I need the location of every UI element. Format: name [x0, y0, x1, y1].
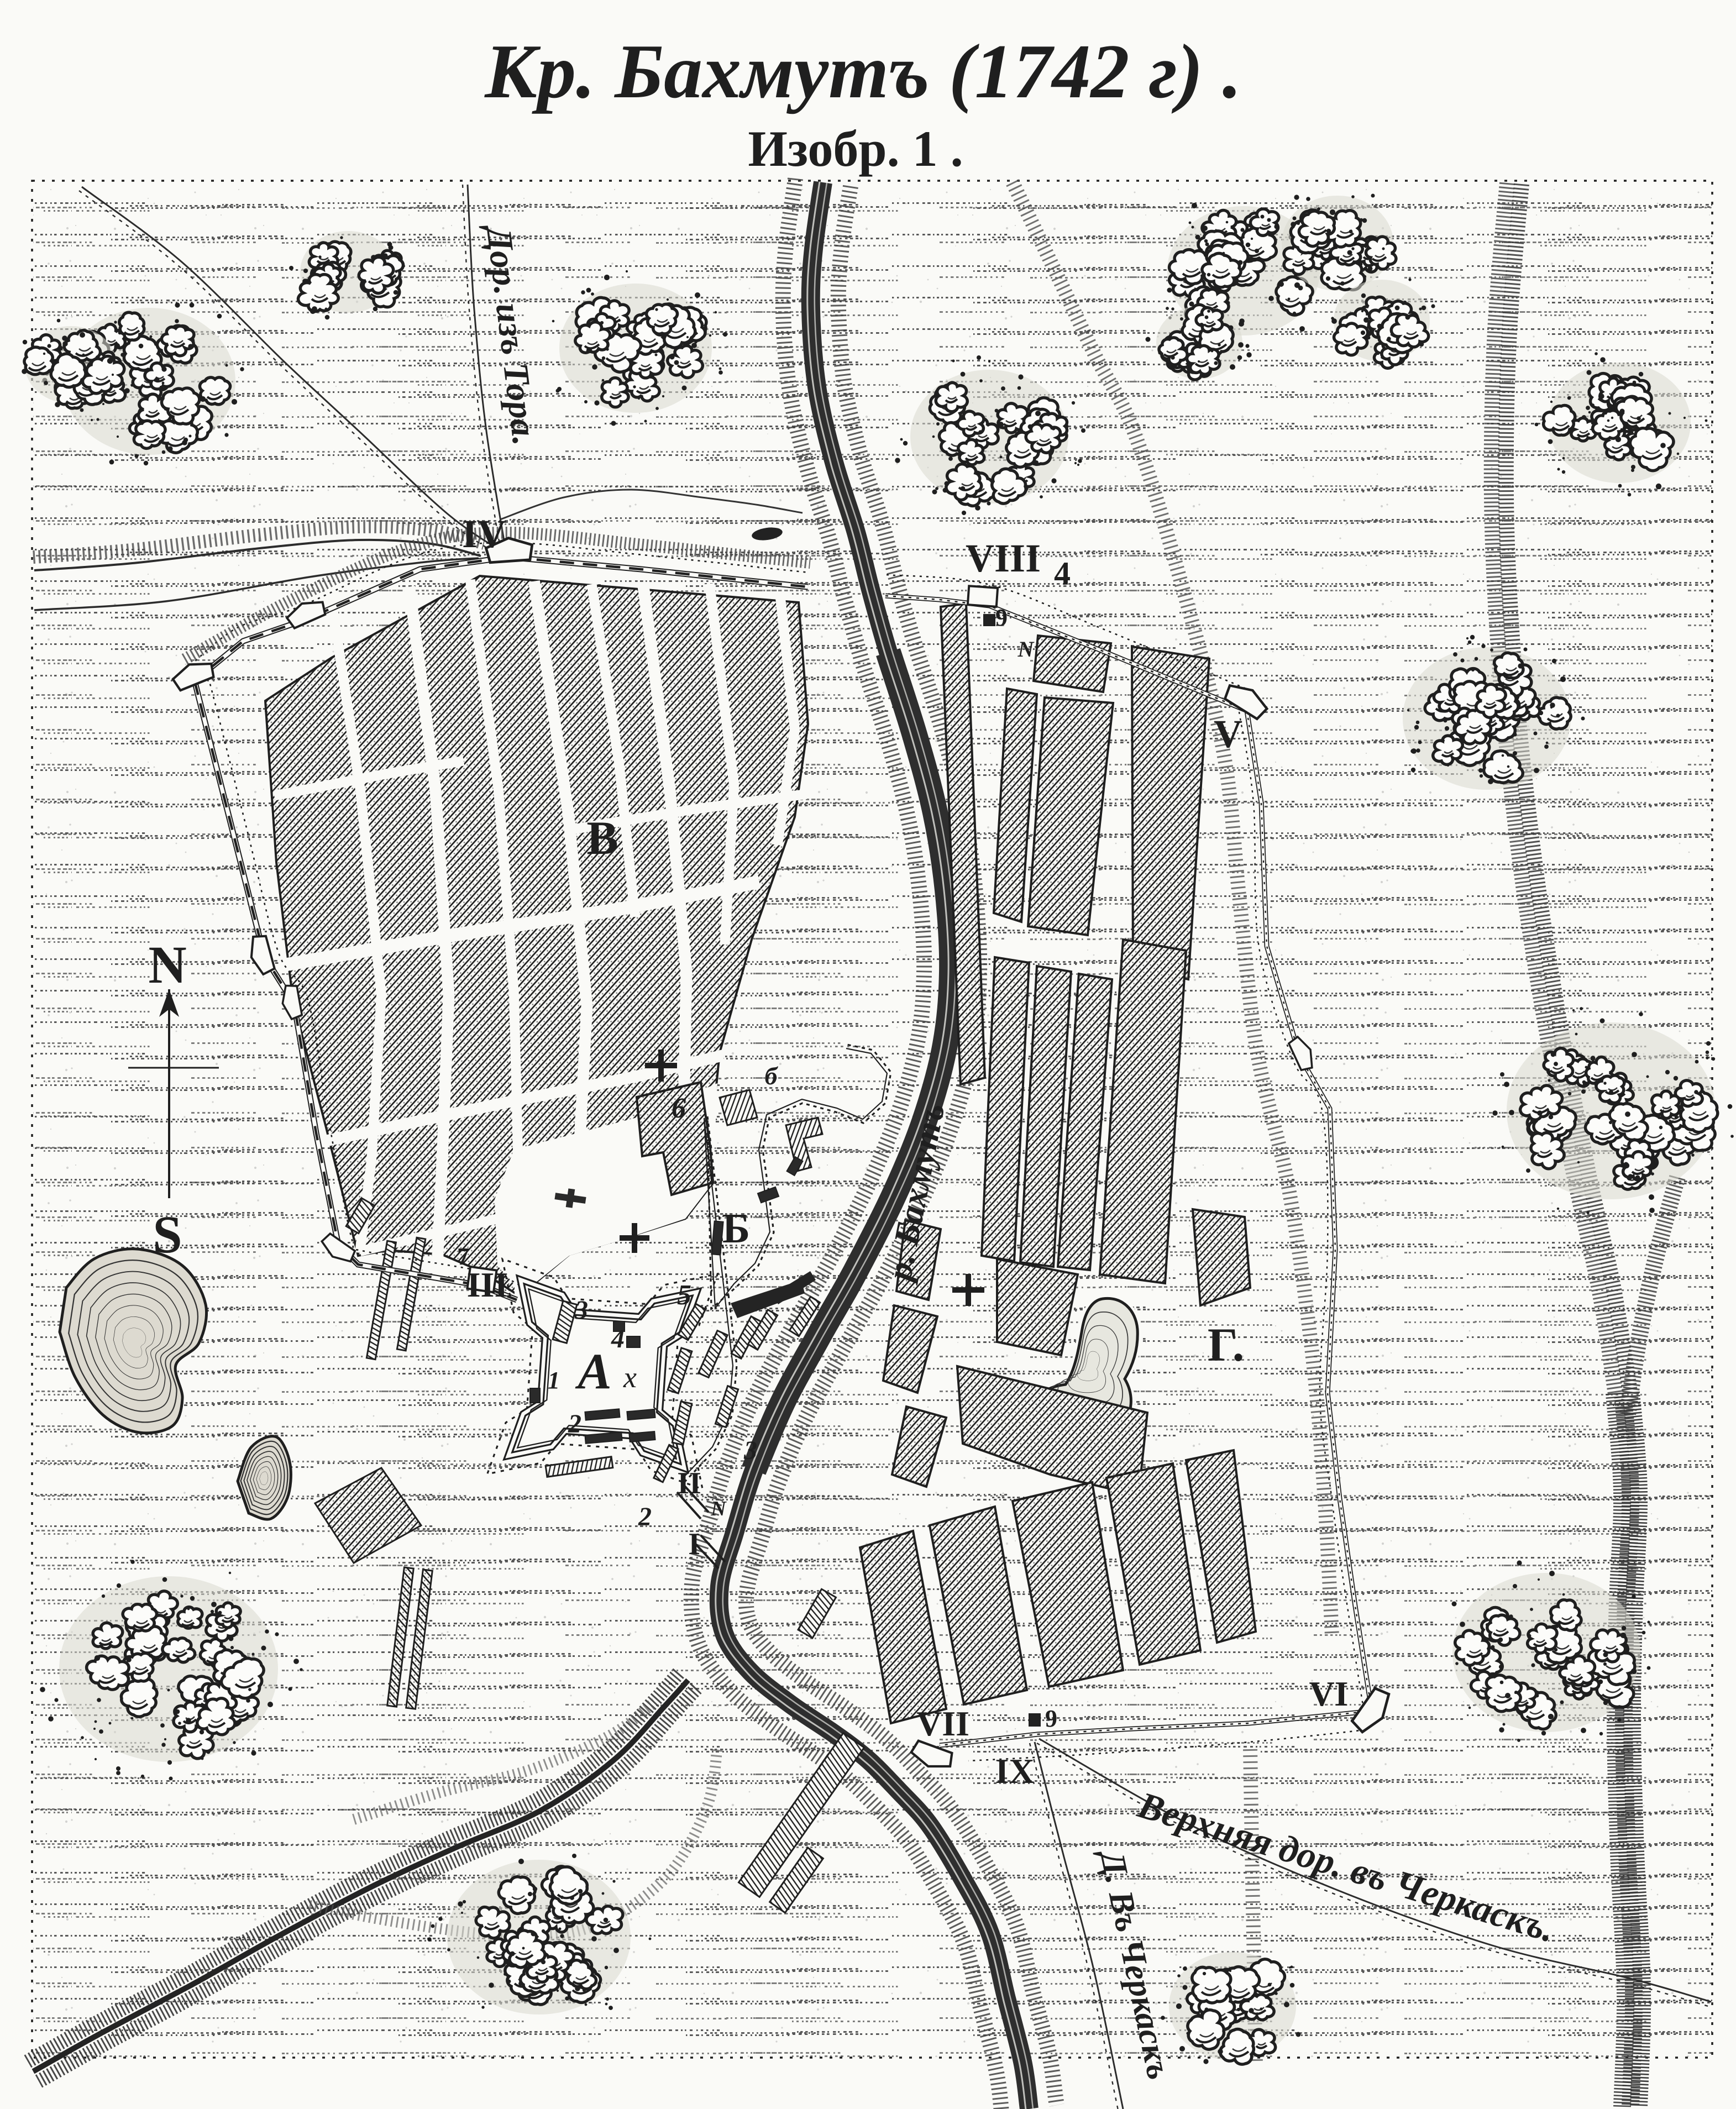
- svg-text:Г.: Г.: [1208, 1318, 1245, 1371]
- svg-text:IX: IX: [995, 1751, 1034, 1791]
- svg-text:N: N: [710, 1497, 727, 1520]
- svg-text:В: В: [586, 811, 618, 864]
- svg-text:N: N: [148, 935, 186, 994]
- svg-text:3: 3: [743, 1436, 757, 1465]
- svg-text:6: 6: [672, 1093, 686, 1124]
- svg-text:х: х: [623, 1361, 637, 1394]
- svg-text:IV: IV: [462, 512, 506, 556]
- svg-text:V: V: [1214, 712, 1242, 756]
- svg-text:2: 2: [568, 1409, 581, 1439]
- svg-text:Изобр. 1 .: Изобр. 1 .: [748, 120, 963, 177]
- svg-text:9: 9: [1045, 1705, 1057, 1732]
- svg-text:9: 9: [995, 604, 1008, 631]
- svg-text:4: 4: [611, 1324, 625, 1353]
- svg-text:А: А: [575, 1343, 611, 1399]
- svg-text:3: 3: [574, 1295, 588, 1325]
- svg-text:4: 4: [1054, 555, 1071, 592]
- svg-text:Кр. Бахмутъ (1742 г) .: Кр. Бахмутъ (1742 г) .: [484, 29, 1242, 114]
- svg-text:I: I: [688, 1527, 700, 1561]
- svg-text:S: S: [153, 1205, 182, 1264]
- svg-text:VII: VII: [916, 1704, 969, 1743]
- svg-text:5: 5: [677, 1279, 691, 1311]
- svg-text:б: б: [765, 1062, 779, 1090]
- svg-text:1: 1: [548, 1367, 560, 1394]
- svg-text:III: III: [467, 1265, 508, 1304]
- svg-text:II: II: [677, 1466, 701, 1501]
- svg-text:Б: Б: [722, 1205, 750, 1252]
- svg-text:N: N: [1018, 637, 1035, 662]
- svg-text:2: 2: [638, 1502, 652, 1531]
- svg-text:VI: VI: [1309, 1674, 1348, 1713]
- svg-text:VIII: VIII: [966, 536, 1041, 580]
- svg-text:7: 7: [457, 1243, 469, 1270]
